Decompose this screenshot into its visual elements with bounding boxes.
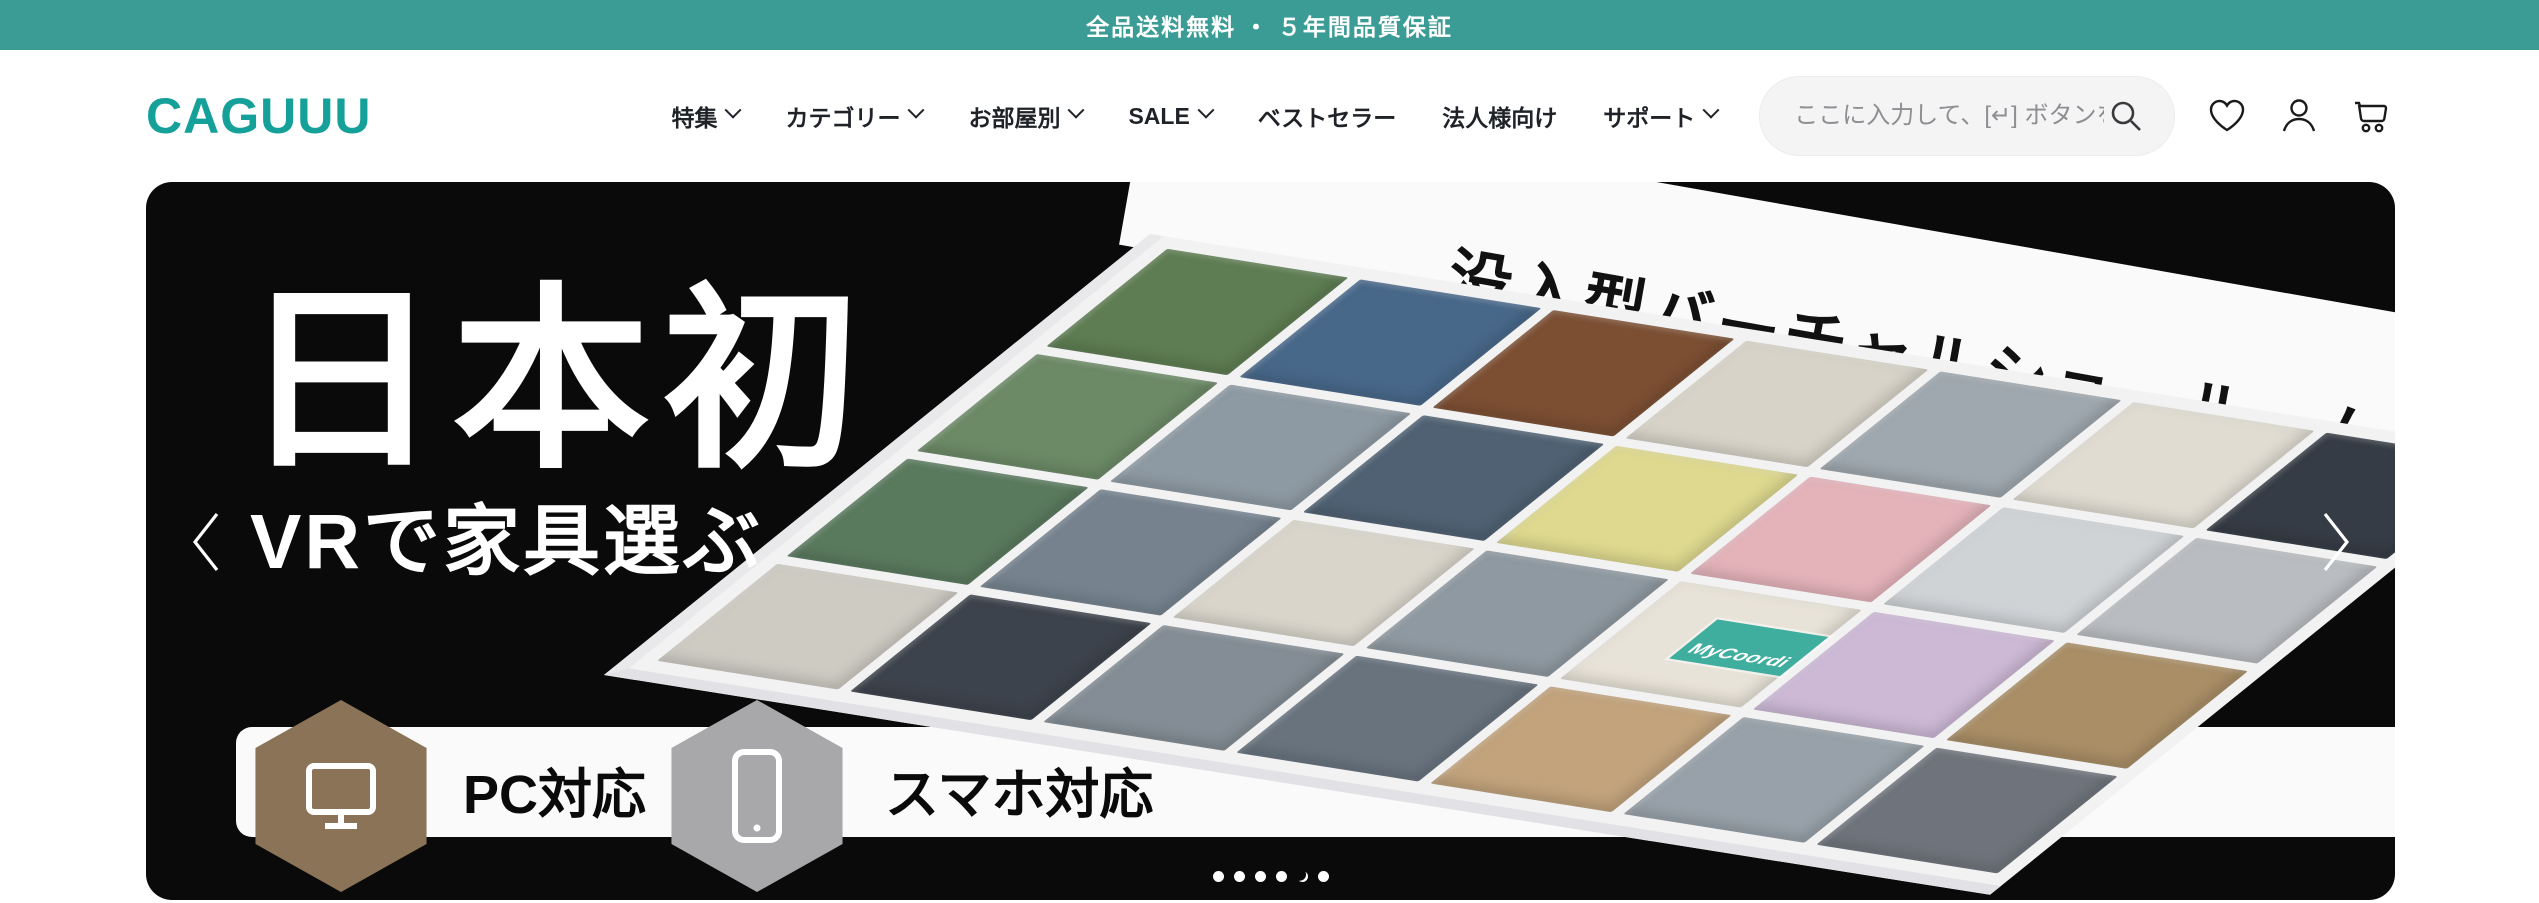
search-button[interactable] bbox=[2104, 94, 2148, 138]
nav-item-2[interactable]: お部屋別 bbox=[968, 99, 1082, 133]
chevron-down-icon bbox=[1068, 102, 1085, 119]
nav-item-label: 法人様向け bbox=[1442, 99, 1557, 133]
hero-subtitle: VRで家具選ぶ bbox=[250, 504, 763, 581]
chevron-down-icon bbox=[1703, 102, 1720, 119]
pc-badge-label: PC対応 bbox=[463, 750, 646, 829]
carousel-dots bbox=[146, 871, 2395, 882]
search-bar bbox=[1759, 76, 2175, 156]
carousel-dot-4[interactable] bbox=[1297, 871, 1308, 882]
nav-item-label: お部屋別 bbox=[968, 99, 1060, 133]
hero-title: 日本初 bbox=[242, 282, 872, 480]
search-input[interactable] bbox=[1794, 102, 2104, 130]
smartphone-badge-label: スマホ対応 bbox=[885, 750, 1153, 829]
carousel-dot-3[interactable] bbox=[1276, 871, 1287, 882]
main-nav: 特集カテゴリーお部屋別SALEベストセラー法人様向けサポート bbox=[671, 99, 1717, 133]
carousel-dot-5[interactable] bbox=[1318, 871, 1329, 882]
nav-item-label: SALE bbox=[1128, 103, 1189, 130]
promo-banner: 全品送料無料 ・ ５年間品質保証 bbox=[0, 0, 2539, 50]
cart-icon bbox=[2349, 95, 2393, 137]
carousel-prev-button[interactable] bbox=[176, 502, 236, 582]
logo[interactable]: CAGUUU bbox=[146, 87, 371, 145]
nav-item-1[interactable]: カテゴリー bbox=[785, 99, 922, 133]
nav-item-label: ベストセラー bbox=[1258, 99, 1396, 133]
header-actions bbox=[2205, 94, 2393, 138]
nav-item-3[interactable]: SALE bbox=[1128, 103, 1211, 130]
nav-item-4[interactable]: ベストセラー bbox=[1258, 99, 1396, 133]
chevron-down-icon bbox=[908, 102, 925, 119]
smartphone-icon bbox=[711, 744, 803, 848]
carousel-next-button[interactable] bbox=[2306, 502, 2366, 582]
promo-banner-text: 全品送料無料 ・ ５年間品質保証 bbox=[1086, 8, 1453, 42]
hero-carousel-slide[interactable]: 没入型バーチャルショールーム MyCoordi 日本初 VRで家具選ぶ PC対応… bbox=[146, 182, 2395, 900]
carousel-dot-2[interactable] bbox=[1255, 871, 1266, 882]
carousel-dot-1[interactable] bbox=[1234, 871, 1245, 882]
nav-item-0[interactable]: 特集 bbox=[671, 99, 739, 133]
search-icon bbox=[2106, 96, 2146, 136]
chevron-down-icon bbox=[725, 102, 742, 119]
chevron-right-icon bbox=[2319, 510, 2353, 574]
account-button[interactable] bbox=[2277, 94, 2321, 138]
carousel-dot-0[interactable] bbox=[1213, 871, 1224, 882]
chevron-left-icon bbox=[189, 510, 223, 574]
site-header: CAGUUU 特集カテゴリーお部屋別SALEベストセラー法人様向けサポート bbox=[0, 50, 2539, 182]
nav-item-label: 特集 bbox=[671, 99, 717, 133]
nav-item-label: サポート bbox=[1603, 99, 1695, 133]
cart-button[interactable] bbox=[2349, 94, 2393, 138]
account-user-icon bbox=[2278, 95, 2320, 137]
chevron-down-icon bbox=[1197, 102, 1214, 119]
wishlist-button[interactable] bbox=[2205, 94, 2249, 138]
monitor-icon bbox=[295, 750, 387, 842]
wishlist-heart-icon bbox=[2206, 95, 2248, 137]
nav-item-5[interactable]: 法人様向け bbox=[1442, 99, 1557, 133]
nav-item-6[interactable]: サポート bbox=[1603, 99, 1717, 133]
nav-item-label: カテゴリー bbox=[785, 99, 900, 133]
